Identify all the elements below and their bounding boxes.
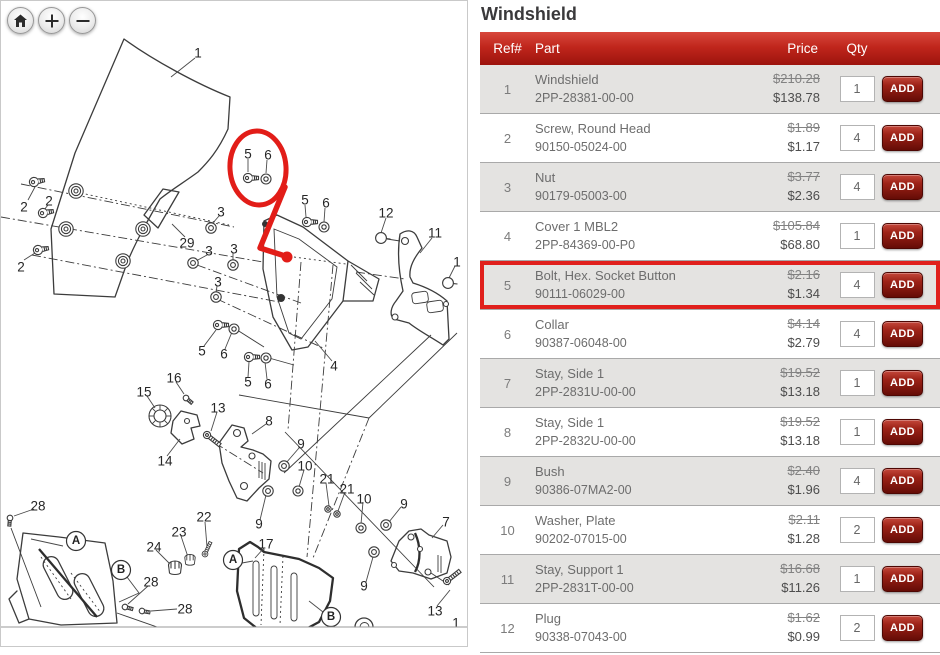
callout-label: 10: [356, 492, 371, 507]
callout-label: 12: [378, 206, 393, 221]
part-number: 2PP-84369-00-P0: [535, 236, 742, 255]
exploded-parts-diagram[interactable]: ABAB 12222933335656121115656416151314891…: [1, 1, 467, 646]
part-number: 90338-07043-00: [535, 628, 742, 647]
current-price: $1.17: [742, 138, 820, 157]
table-row: 7 Stay, Side 1 2PP-2831U-00-00 $19.52 $1…: [480, 359, 940, 408]
callout-label: 3: [230, 242, 238, 257]
page-title: Windshield: [480, 0, 940, 32]
callout-label: 22: [196, 510, 211, 525]
table-row: 8 Stay, Side 1 2PP-2832U-00-00 $19.52 $1…: [480, 408, 940, 457]
part-name: Stay, Side 1: [535, 364, 742, 384]
zoom-in-button[interactable]: [38, 7, 65, 34]
bolt-glyph: [244, 352, 259, 361]
nut-glyph: [369, 547, 379, 557]
quantity-input[interactable]: [840, 272, 875, 298]
quantity-input[interactable]: [840, 468, 875, 494]
callout-label: 28: [30, 499, 45, 514]
smallscrew-glyph: [182, 394, 194, 405]
callout-label: 8: [265, 414, 273, 429]
part-name: Stay, Side 1: [535, 413, 742, 433]
scan-bottom-edge: [1, 618, 467, 646]
column-part: Part: [535, 41, 742, 56]
part-number: 2PP-28381-00-00: [535, 89, 742, 108]
old-price: $1.62: [742, 609, 820, 628]
table-row: 10 Washer, Plate 90202-07015-00 $2.11 $1…: [480, 506, 940, 555]
old-price: $19.52: [742, 364, 820, 383]
table-row: 2 Screw, Round Head 90150-05024-00 $1.89…: [480, 114, 940, 163]
quantity-input[interactable]: [840, 370, 875, 396]
callout-label: 9: [360, 579, 368, 594]
add-to-cart-button[interactable]: ADD: [882, 517, 923, 543]
bracket-14: [171, 411, 200, 444]
quantity-input[interactable]: [840, 76, 875, 102]
quantity-input[interactable]: [840, 223, 875, 249]
zoom-out-button[interactable]: [69, 7, 96, 34]
part-number: 90386-07MA2-00: [535, 481, 742, 500]
part-name: Washer, Plate: [535, 511, 742, 531]
nut-glyph: [211, 292, 221, 302]
column-qty: Qty: [832, 41, 882, 56]
add-to-cart-button[interactable]: ADD: [882, 566, 923, 592]
add-to-cart-button[interactable]: ADD: [882, 370, 923, 396]
construction-lines: [1, 184, 457, 641]
callout-label: 9: [297, 437, 305, 452]
callout-label: 17: [258, 537, 273, 552]
part-ref: 7: [480, 376, 535, 391]
old-price: $210.28: [742, 70, 820, 89]
part-name: Screw, Round Head: [535, 119, 742, 139]
current-price: $13.18: [742, 383, 820, 402]
callout-label: 11: [428, 226, 442, 241]
washer-glyph: [261, 174, 271, 184]
callout-label: 28: [143, 575, 158, 590]
callout-label: 21: [319, 472, 334, 487]
callout-label: 16: [166, 371, 181, 386]
current-price: $1.96: [742, 481, 820, 500]
longbolt-glyph: [202, 430, 222, 448]
add-to-cart-button[interactable]: ADD: [882, 223, 923, 249]
part-ref: 3: [480, 180, 535, 195]
quantity-input[interactable]: [840, 517, 875, 543]
nut-glyph: [228, 260, 238, 270]
current-price: $1.28: [742, 530, 820, 549]
add-to-cart-button[interactable]: ADD: [882, 174, 923, 200]
callout-label: 7: [442, 515, 450, 530]
left-cover: [9, 533, 117, 625]
callout-label: 15: [136, 385, 151, 400]
callout-label: 1: [194, 46, 202, 61]
part-ref: 9: [480, 474, 535, 489]
circled-letters: ABAB: [67, 532, 341, 627]
table-header: Ref# Part Price Qty: [480, 32, 940, 65]
part-number: 90387-06048-00: [535, 334, 742, 353]
old-price: $19.52: [742, 413, 820, 432]
callout-label: 5: [301, 193, 309, 208]
old-price: $4.14: [742, 315, 820, 334]
knob-15: [149, 405, 171, 427]
part-ref: 5: [480, 278, 535, 293]
callout-label: 14: [157, 454, 173, 469]
circled-letter-A: A: [224, 551, 243, 570]
part-ref: 1: [480, 82, 535, 97]
washer-glyph: [356, 523, 366, 533]
old-price: $105.84: [742, 217, 820, 236]
plus-icon: [44, 13, 60, 29]
quantity-input[interactable]: [840, 615, 875, 641]
cup-glyph: [185, 554, 195, 565]
old-price: $2.11: [742, 511, 820, 530]
bracket-17: [237, 542, 333, 630]
add-to-cart-button[interactable]: ADD: [882, 272, 923, 298]
current-price: $2.36: [742, 187, 820, 206]
part-name: Plug: [535, 609, 742, 629]
home-button[interactable]: [7, 7, 34, 34]
callout-label: 3: [205, 244, 213, 259]
diagram-zoom-controls: [7, 7, 96, 34]
part-ref: 6: [480, 327, 535, 342]
nut-glyph: [188, 258, 198, 268]
part-ref: 8: [480, 425, 535, 440]
table-row: 12 Plug 90338-07043-00 $1.62 $0.99 ADD: [480, 604, 940, 653]
table-row: 9 Bush 90386-07MA2-00 $2.40 $1.96 ADD: [480, 457, 940, 506]
callout-label: 6: [264, 148, 272, 163]
callout-label: 3: [214, 275, 222, 290]
part-number: 90179-05003-00: [535, 187, 742, 206]
part-name: Windshield: [535, 70, 742, 90]
table-row: 4 Cover 1 MBL2 2PP-84369-00-P0 $105.84 $…: [480, 212, 940, 261]
callout-label: 24: [146, 540, 162, 555]
callout-label: 28: [177, 602, 192, 617]
bolt-glyph: [302, 217, 317, 226]
parts-list-panel: Windshield Ref# Part Price Qty 1 Windshi…: [480, 0, 940, 655]
callout-label: 21: [339, 482, 354, 497]
washer-glyph: [319, 222, 329, 232]
quantity-input[interactable]: [840, 125, 875, 151]
callout-label: 13: [210, 401, 225, 416]
circled-letter-A: A: [67, 532, 86, 551]
part-number: 90202-07015-00: [535, 530, 742, 549]
part-ref: 2: [480, 131, 535, 146]
table-row: 5 Bolt, Hex. Socket Button 90111-06029-0…: [480, 261, 940, 310]
old-price: $1.89: [742, 119, 820, 138]
old-price: $16.68: [742, 560, 820, 579]
add-to-cart-button[interactable]: ADD: [882, 468, 923, 494]
part-name: Nut: [535, 168, 742, 188]
part-name: Collar: [535, 315, 742, 335]
callout-label: 23: [171, 525, 186, 540]
current-price: $138.78: [742, 89, 820, 108]
washer-glyph: [261, 353, 271, 363]
quantity-input[interactable]: [840, 419, 875, 445]
bolt-glyph: [29, 176, 45, 188]
part-number: 2PP-2832U-00-00: [535, 432, 742, 451]
callout-label: 13: [427, 604, 442, 619]
callout-label: 6: [264, 377, 272, 392]
part-name: Cover 1 MBL2: [535, 217, 742, 237]
table-row: 6 Collar 90387-06048-00 $4.14 $2.79 ADD: [480, 310, 940, 359]
svg-text:A: A: [229, 554, 237, 566]
column-ref: Ref#: [480, 41, 535, 56]
current-price: $1.34: [742, 285, 820, 304]
nut-glyph: [279, 461, 289, 471]
highlight-arrow-dot: [282, 252, 293, 263]
grommet-glyph: [136, 222, 150, 236]
part-name: Bolt, Hex. Socket Button: [535, 266, 742, 286]
callout-label: 1: [453, 255, 461, 270]
cup-glyph: [169, 561, 182, 575]
grommet-glyph: [116, 254, 130, 268]
minus-icon: [75, 13, 91, 29]
current-price: $0.99: [742, 628, 820, 647]
callout-label: 10: [297, 459, 312, 474]
parts-diagram-panel: ABAB 12222933335656121115656416151314891…: [0, 0, 468, 647]
patch-29: [144, 189, 179, 228]
part-ref: 12: [480, 621, 535, 636]
callout-label: 4: [330, 359, 338, 374]
old-price: $2.16: [742, 266, 820, 285]
quantity-input[interactable]: [840, 321, 875, 347]
washer-glyph: [229, 324, 239, 334]
table-row: 11 Stay, Support 1 2PP-2831T-00-00 $16.6…: [480, 555, 940, 604]
part-number: 90111-06029-00: [535, 285, 742, 304]
callout-label: 2: [45, 194, 53, 209]
nut-glyph: [206, 223, 216, 233]
callout-label: 5: [244, 147, 252, 162]
parts-table-body: 1 Windshield 2PP-28381-00-00 $210.28 $13…: [480, 65, 940, 653]
bracket-7: [391, 529, 451, 579]
home-icon: [13, 14, 28, 28]
callout-label: 6: [220, 347, 228, 362]
ring-glyph: [334, 511, 340, 517]
callout-label: 9: [255, 517, 263, 532]
callout-label: 2: [20, 200, 28, 215]
bolt-glyph: [243, 173, 258, 182]
svg-text:B: B: [117, 564, 125, 576]
add-to-cart-button[interactable]: ADD: [882, 125, 923, 151]
column-price: Price: [742, 41, 832, 56]
circled-letter-B: B: [112, 561, 131, 580]
old-price: $2.40: [742, 462, 820, 481]
table-row: 3 Nut 90179-05003-00 $3.77 $2.36 ADD: [480, 163, 940, 212]
cover-part-4: [262, 215, 379, 350]
grommet-glyph: [59, 222, 73, 236]
smallscrew-glyph: [7, 515, 14, 526]
add-to-cart-button[interactable]: ADD: [882, 615, 923, 641]
part-ref: 4: [480, 229, 535, 244]
callout-label: 9: [400, 497, 408, 512]
grommet-glyph: [69, 184, 83, 198]
add-to-cart-button[interactable]: ADD: [882, 321, 923, 347]
add-to-cart-button[interactable]: ADD: [882, 419, 923, 445]
old-price: $3.77: [742, 168, 820, 187]
longbolt-glyph: [442, 568, 462, 586]
add-to-cart-button[interactable]: ADD: [882, 76, 923, 102]
smallscrew-glyph: [139, 608, 151, 615]
bolt-glyph: [33, 244, 49, 256]
part-number: 2PP-2831U-00-00: [535, 383, 742, 402]
part-name: Stay, Support 1: [535, 560, 742, 580]
part-number: 90150-05024-00: [535, 138, 742, 157]
callout-label: 29: [179, 236, 194, 251]
current-price: $68.80: [742, 236, 820, 255]
current-price: $13.18: [742, 432, 820, 451]
part-ref: 11: [480, 572, 535, 587]
quantity-input[interactable]: [840, 174, 875, 200]
washer-glyph: [293, 486, 303, 496]
part-ref: 10: [480, 523, 535, 538]
svg-text:A: A: [72, 535, 80, 547]
stay-support-11: [387, 231, 449, 345]
quantity-input[interactable]: [840, 566, 875, 592]
windshield-outline: [51, 39, 230, 297]
smallscrew-glyph: [122, 604, 134, 612]
callout-label: 3: [217, 205, 225, 220]
part-number: 2PP-2831T-00-00: [535, 579, 742, 598]
callout-label: 6: [322, 196, 330, 211]
circled-letter-B: B: [322, 608, 341, 627]
current-price: $2.79: [742, 334, 820, 353]
nut-glyph: [381, 520, 391, 530]
callout-label: 5: [198, 344, 206, 359]
nut-glyph: [263, 486, 273, 496]
plug-glyph: [376, 233, 391, 244]
callout-label: 2: [17, 260, 25, 275]
plug-glyph: [443, 278, 458, 289]
callout-label: 5: [244, 375, 252, 390]
current-price: $11.26: [742, 579, 820, 598]
part-name: Bush: [535, 462, 742, 482]
svg-text:B: B: [327, 611, 335, 623]
ring-glyph: [325, 506, 331, 512]
table-row: 1 Windshield 2PP-28381-00-00 $210.28 $13…: [480, 65, 940, 114]
bolt-glyph: [213, 320, 228, 329]
